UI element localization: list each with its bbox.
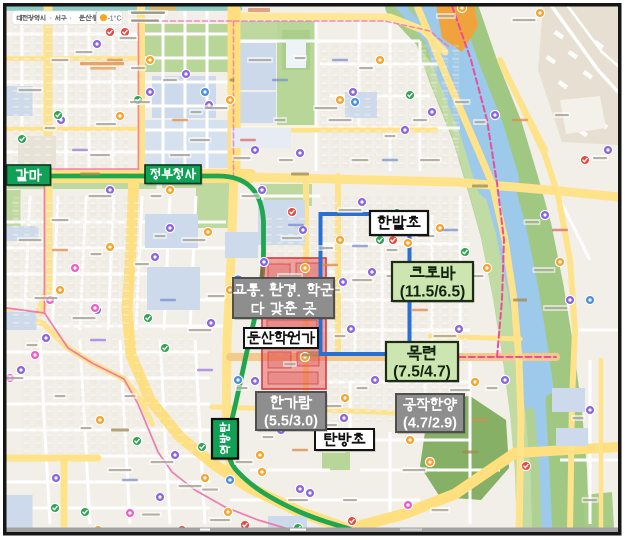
svg-text:(4.7/2.9): (4.7/2.9) [403,416,457,432]
svg-text:(11.5/6.5): (11.5/6.5) [400,284,466,301]
svg-text:›: › [69,15,71,22]
svg-text:›: › [49,15,51,22]
svg-text:(7.5/4.7): (7.5/4.7) [393,364,451,381]
svg-text:(5.5/3.0): (5.5/3.0) [264,414,318,430]
svg-text:-1°C: -1°C [107,14,121,22]
